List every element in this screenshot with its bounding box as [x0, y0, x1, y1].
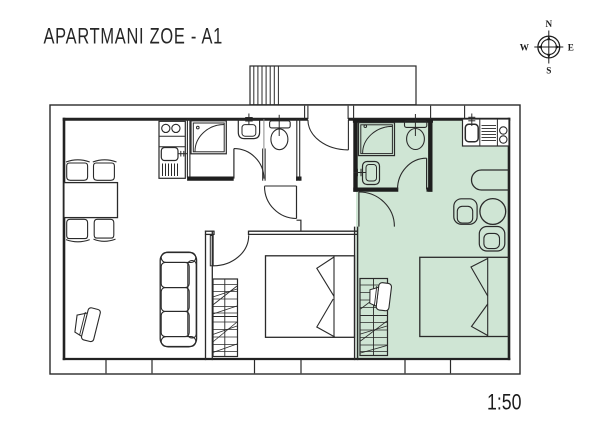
svg-text:S: S [546, 66, 551, 76]
svg-text:E: E [568, 43, 574, 53]
svg-text:W: W [520, 43, 530, 53]
svg-text:N: N [545, 19, 552, 29]
svg-text:APARTMANI ZOE - A1: APARTMANI ZOE - A1 [44, 24, 224, 49]
svg-text:1:50: 1:50 [487, 390, 522, 415]
